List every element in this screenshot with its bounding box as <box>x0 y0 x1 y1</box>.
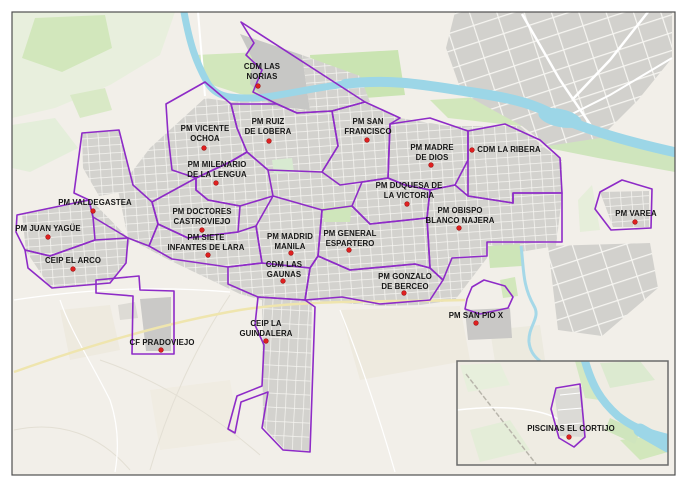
facility-marker-pm-milenario-de-la-lengua <box>214 181 219 186</box>
facility-label-piscinas-el-cortijo: PISCINAS EL CORTIJO <box>527 424 615 433</box>
facility-marker-pm-madre-de-dios <box>429 163 434 168</box>
facility-marker-pm-varea <box>633 220 638 225</box>
facility-marker-pm-general-espartero <box>347 248 352 253</box>
facility-label-pm-san-pio-x: PM SAN PIO X <box>449 311 504 320</box>
facility-label-pm-juan-yague: PM JUAN YAGÜE <box>15 224 80 233</box>
facility-marker-cdm-la-ribera <box>470 148 475 153</box>
facility-marker-pm-madrid-manila <box>289 251 294 256</box>
facility-marker-pm-obispo-blanco-najera <box>457 226 462 231</box>
facility-label-cf-pradoviejo: CF PRADOVIEJO <box>130 338 195 347</box>
facility-label-pm-general-espartero: PM GENERALESPARTERO <box>324 229 377 248</box>
facility-label-pm-varea: PM VAREA <box>615 209 657 218</box>
facility-marker-pm-gonzalo-de-berceo <box>402 291 407 296</box>
facility-marker-pm-ruiz-de-lobera <box>267 139 272 144</box>
facility-label-cdm-las-norias: CDM LASNORIAS <box>244 62 280 81</box>
map-screenshot: CDM LASNORIASPM RUIZDE LOBERAPM VICENTEO… <box>0 0 690 488</box>
facility-label-ceip-el-arco: CEIP EL ARCO <box>45 256 101 265</box>
facility-label-pm-gonzalo-de-berceo: PM GONZALODE BERCEO <box>378 272 432 291</box>
facility-label-pm-duquesa-de-la-victoria: PM DUQUESA DELA VICTORIA <box>376 181 443 200</box>
facility-marker-piscinas-el-cortijo <box>567 435 572 440</box>
facility-marker-pm-vicente-ochoa <box>202 146 207 151</box>
facility-marker-pm-doctores-castroviejo <box>200 228 205 233</box>
facility-marker-pm-juan-yague <box>46 235 51 240</box>
facility-marker-pm-san-francisco <box>365 138 370 143</box>
facility-marker-pm-siete-infantes-de-lara <box>206 253 211 258</box>
facility-label-pm-doctores-castroviejo: PM DOCTORESCASTROVIEJO <box>172 207 231 226</box>
facility-label-pm-madre-de-dios: PM MADREDE DIOS <box>410 143 453 162</box>
facility-label-pm-milenario-de-la-lengua: PM MILENARIODE LA LENGUA <box>187 160 247 179</box>
facility-marker-cdm-las-norias <box>256 84 261 89</box>
inset-map: PISCINAS EL CORTIJO <box>457 361 668 465</box>
facility-label-cdm-las-gaunas: CDM LASGAUNAS <box>266 260 302 279</box>
city-map: CDM LASNORIASPM RUIZDE LOBERAPM VICENTEO… <box>0 0 690 488</box>
facility-marker-ceip-el-arco <box>71 267 76 272</box>
facility-label-cdm-la-ribera: CDM LA RIBERA <box>477 145 541 154</box>
facility-marker-cf-pradoviejo <box>159 348 164 353</box>
facility-marker-ceip-la-guindalera <box>264 339 269 344</box>
inset-basemap <box>457 361 668 465</box>
facility-marker-pm-san-pio-x <box>474 321 479 326</box>
facility-marker-pm-valdegastea <box>91 209 96 214</box>
facility-marker-pm-duquesa-de-la-victoria <box>405 202 410 207</box>
facility-label-pm-valdegastea: PM VALDEGASTEA <box>58 198 132 207</box>
facility-marker-cdm-las-gaunas <box>281 279 286 284</box>
